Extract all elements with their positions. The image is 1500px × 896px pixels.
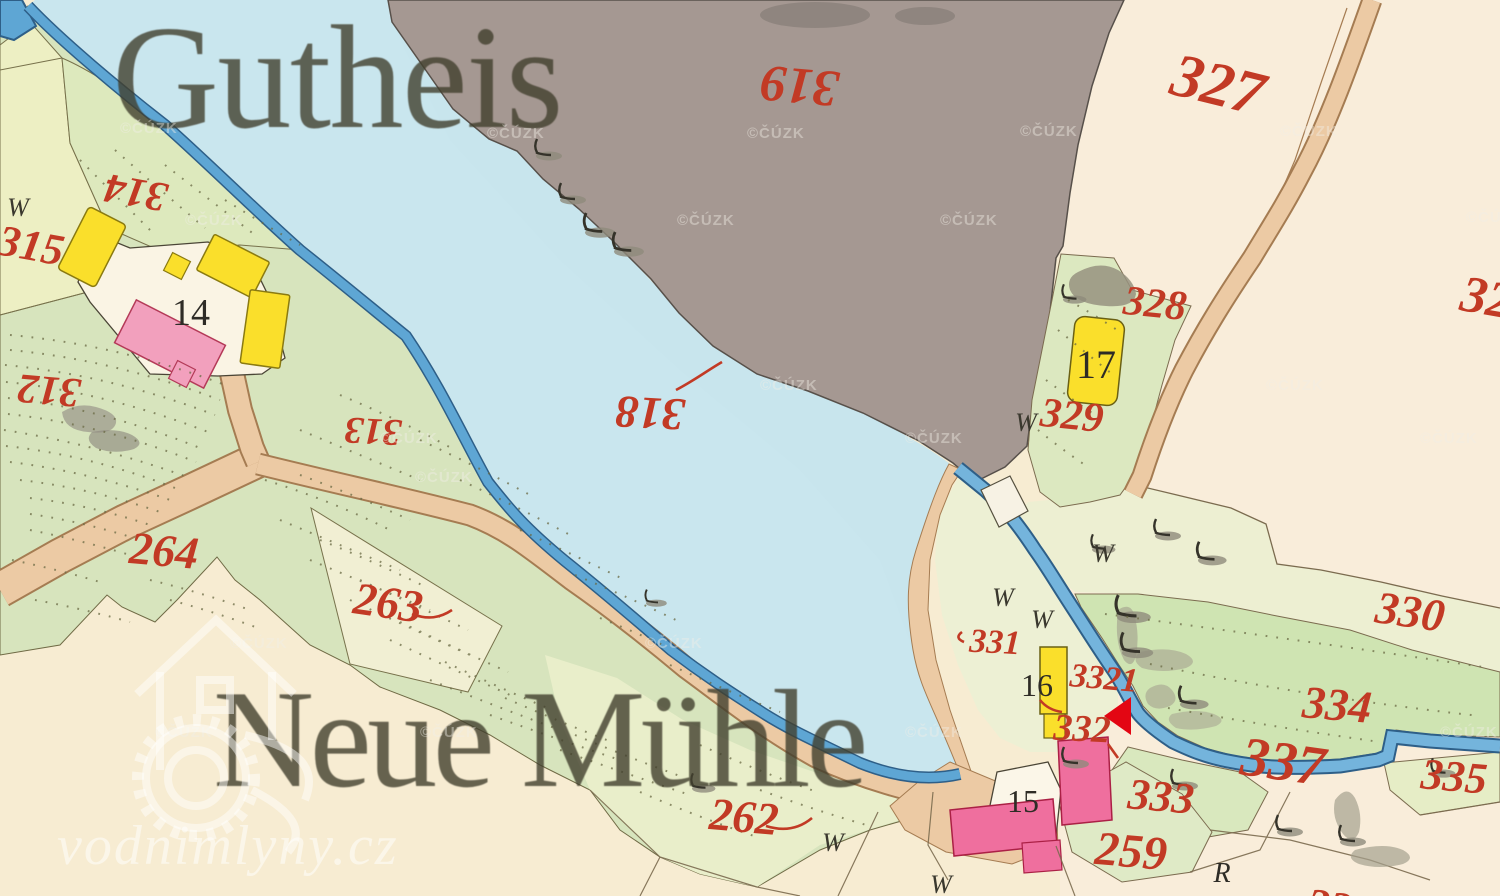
- svg-text:312: 312: [16, 364, 84, 415]
- svg-text:W: W: [1092, 539, 1116, 568]
- svg-text:W: W: [992, 583, 1016, 612]
- svg-text:vodnimlyny.cz: vodnimlyny.cz: [57, 815, 399, 877]
- svg-text:©ČÚZK: ©ČÚZK: [905, 429, 963, 447]
- svg-text:332: 332: [1051, 706, 1111, 751]
- svg-text:264: 264: [126, 522, 200, 579]
- svg-text:337: 337: [1236, 725, 1331, 799]
- svg-text:©ČÚZK: ©ČÚZK: [1440, 723, 1498, 741]
- svg-text:©ČÚZK: ©ČÚZK: [645, 634, 703, 652]
- svg-text:331: 331: [967, 623, 1021, 663]
- svg-text:329: 329: [1037, 390, 1105, 442]
- svg-text:©ČÚZK: ©ČÚZK: [380, 429, 438, 447]
- svg-text:©ČÚZK: ©ČÚZK: [760, 376, 818, 394]
- svg-text:W: W: [1015, 408, 1039, 437]
- svg-text:©ČÚZK: ©ČÚZK: [677, 211, 735, 229]
- svg-text:14: 14: [172, 292, 210, 334]
- svg-text:W: W: [930, 870, 954, 896]
- svg-text:319: 319: [758, 54, 842, 118]
- svg-text:©ČÚZK: ©ČÚZK: [940, 211, 998, 229]
- svg-text:©ČÚZK: ©ČÚZK: [1466, 208, 1500, 226]
- svg-text:©ČÚZK: ©ČÚZK: [747, 124, 805, 142]
- svg-text:16: 16: [1021, 667, 1053, 703]
- svg-text:©ČÚZK: ©ČÚZK: [1280, 122, 1338, 140]
- svg-text:259: 259: [1092, 822, 1169, 881]
- svg-text:328: 328: [1120, 278, 1188, 330]
- svg-text:©ČÚZK: ©ČÚZK: [1420, 429, 1478, 447]
- svg-text:©ČÚZK: ©ČÚZK: [1020, 122, 1078, 140]
- svg-text:©ČÚZK: ©ČÚZK: [1266, 376, 1324, 394]
- svg-text:©ČÚZK: ©ČÚZK: [120, 119, 178, 137]
- svg-text:333: 333: [1125, 769, 1196, 824]
- svg-text:335: 335: [1418, 749, 1489, 804]
- svg-text:334: 334: [1300, 676, 1374, 733]
- svg-text:17: 17: [1076, 342, 1116, 387]
- svg-text:15: 15: [1007, 783, 1039, 819]
- svg-text:315: 315: [0, 215, 68, 275]
- svg-text:©ČÚZK: ©ČÚZK: [415, 468, 473, 486]
- svg-text:318: 318: [614, 386, 687, 441]
- svg-text:©ČÚZK: ©ČÚZK: [420, 723, 478, 741]
- svg-text:263: 263: [350, 572, 426, 632]
- svg-text:W: W: [822, 828, 846, 857]
- svg-text:W: W: [1031, 605, 1055, 634]
- svg-text:©ČÚZK: ©ČÚZK: [185, 211, 243, 229]
- svg-text:W: W: [7, 193, 31, 222]
- svg-text:262: 262: [706, 788, 780, 845]
- svg-text:330: 330: [1372, 581, 1448, 641]
- svg-text:©ČÚZK: ©ČÚZK: [487, 124, 545, 142]
- svg-text:R: R: [1212, 858, 1230, 889]
- svg-text:©ČÚZK: ©ČÚZK: [905, 723, 963, 741]
- svg-text:3321: 3321: [1067, 657, 1139, 700]
